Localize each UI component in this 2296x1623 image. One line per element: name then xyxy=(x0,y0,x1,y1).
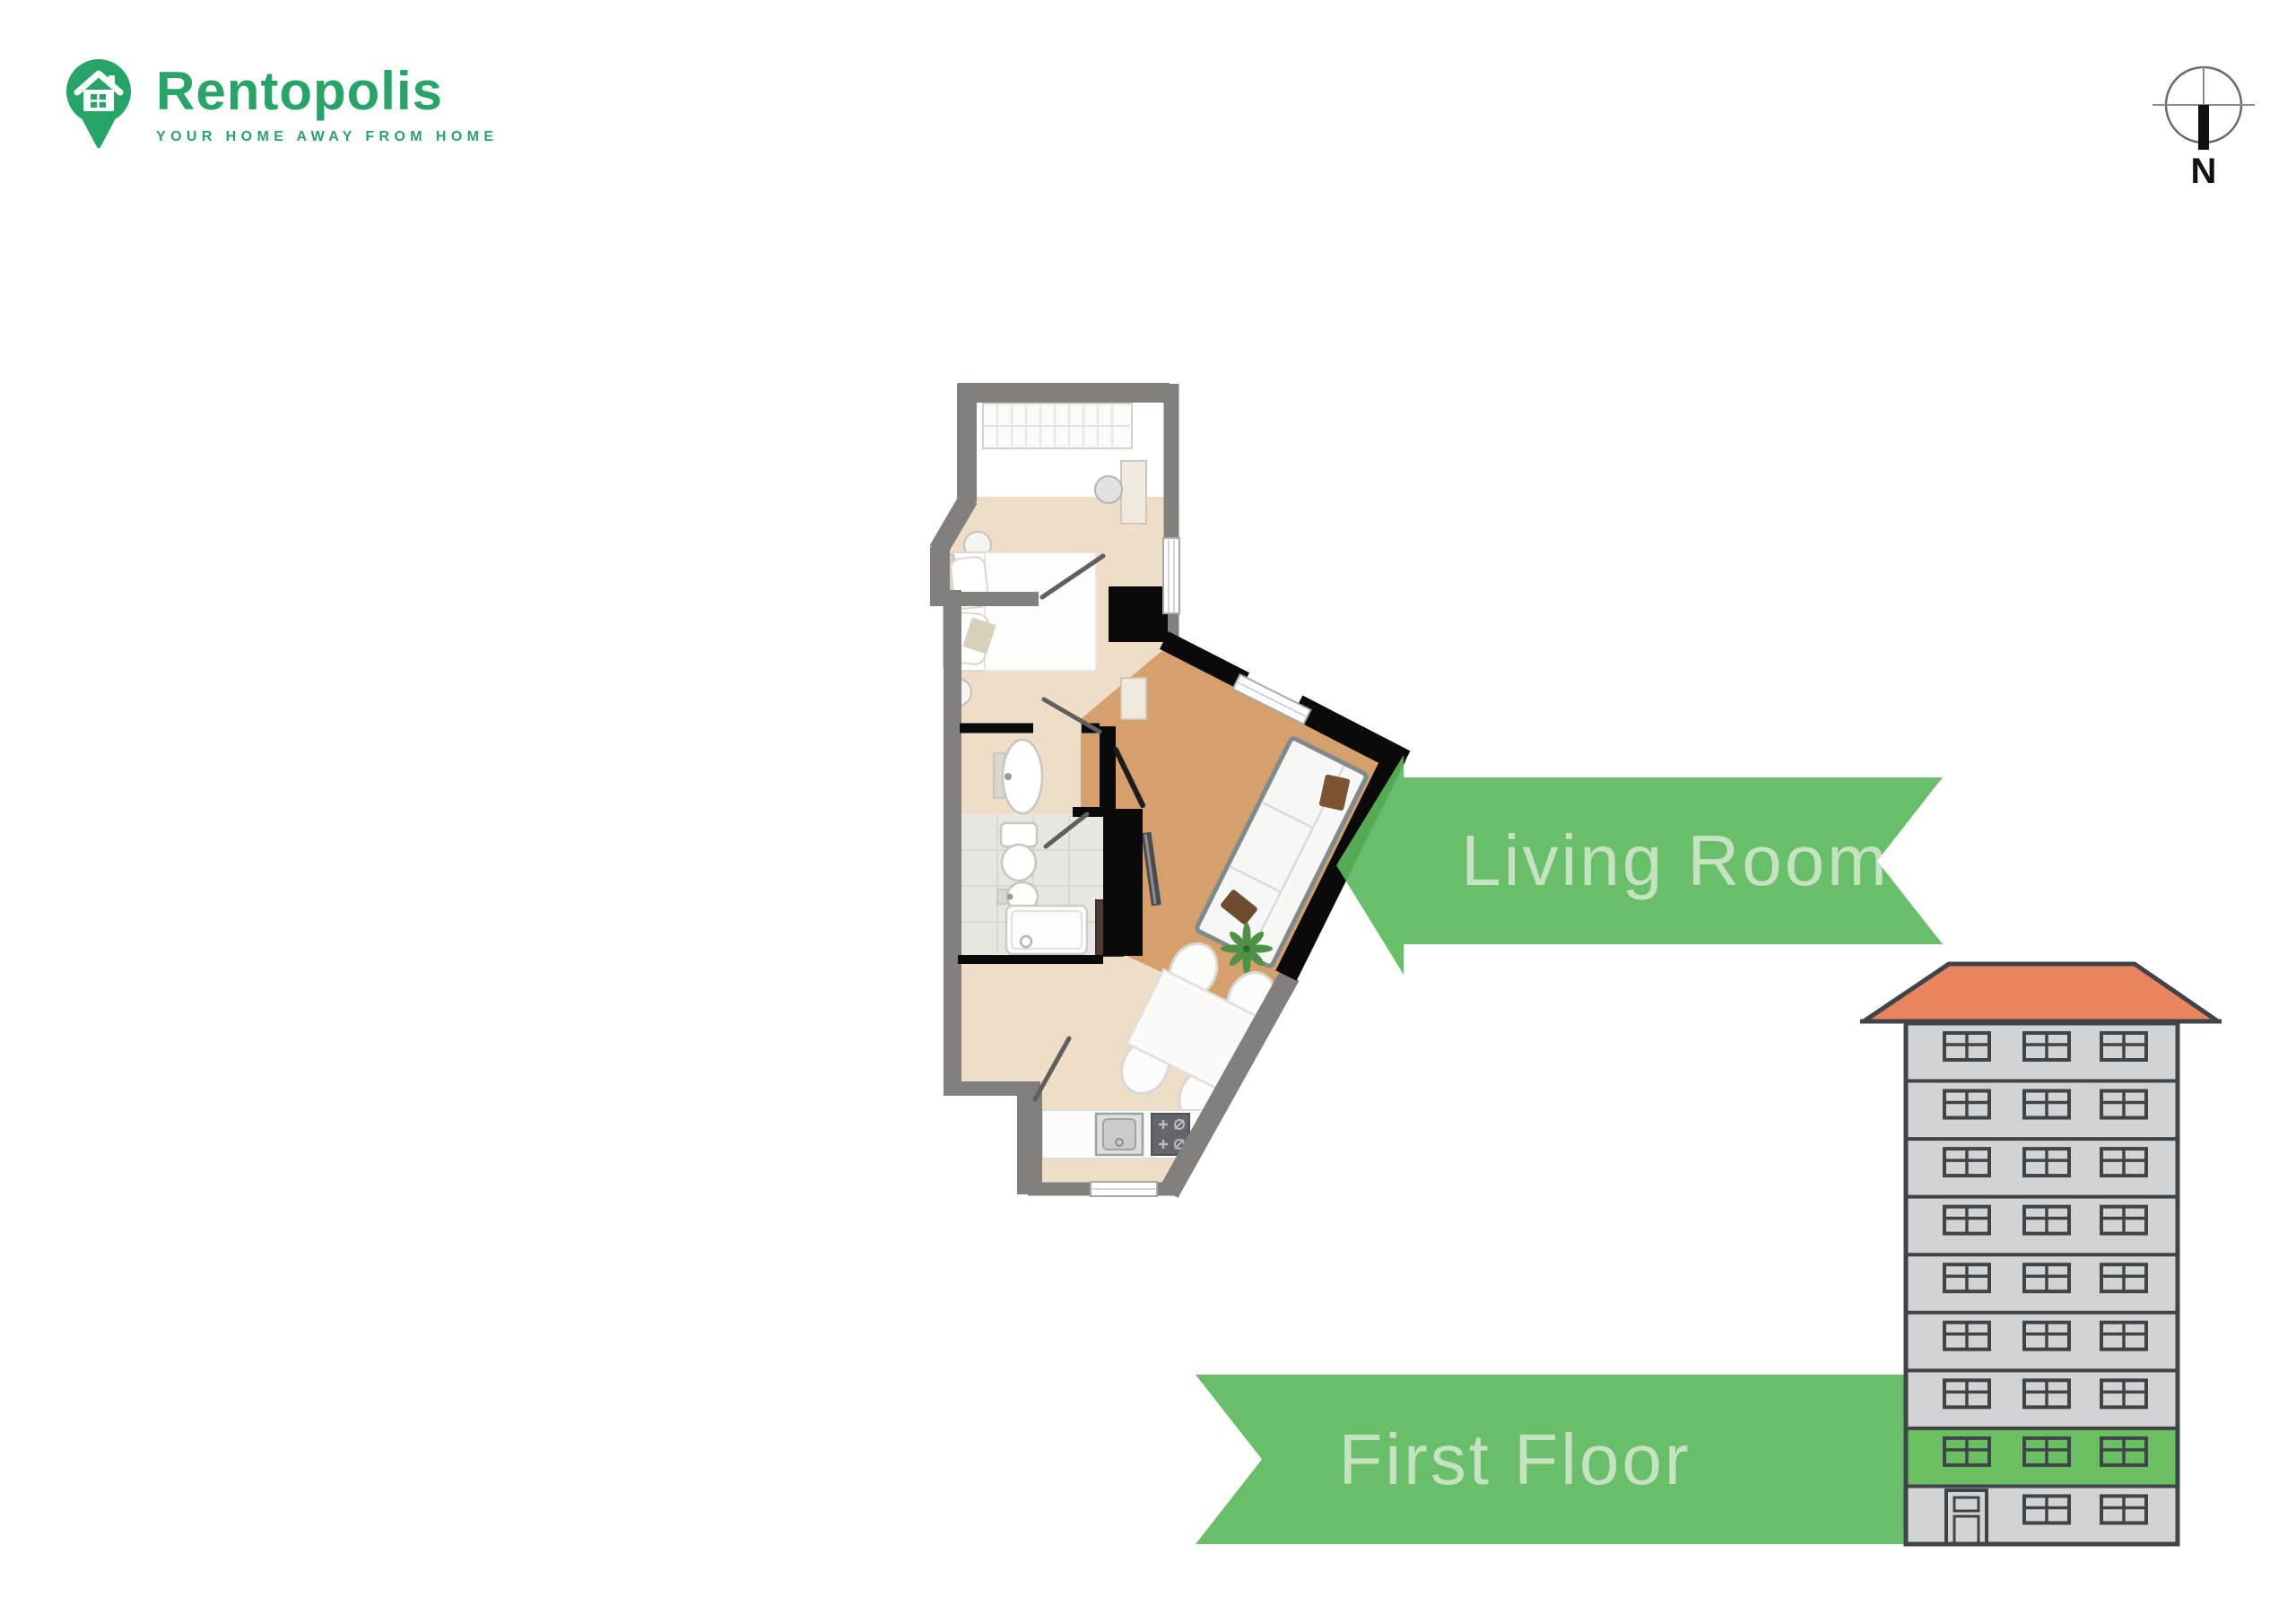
toilet-icon xyxy=(1001,823,1037,881)
building-roof-icon xyxy=(1860,964,2222,1021)
compass-north-icon: N xyxy=(2151,52,2267,195)
window-icon xyxy=(1091,1182,1157,1196)
brand-tagline: YOUR HOME AWAY FROM HOME xyxy=(156,129,498,145)
shower-tray-icon xyxy=(1006,906,1087,954)
floor-plan xyxy=(924,372,1415,1211)
compass-north-label: N xyxy=(2191,152,2217,191)
building-elevation xyxy=(1848,950,2233,1560)
hall-cabinet-icon xyxy=(1121,678,1146,719)
window-icon xyxy=(1163,538,1179,613)
double-bed-icon xyxy=(944,552,1096,671)
desk-icon xyxy=(1121,461,1146,524)
map-pin-house-icon xyxy=(54,52,143,161)
living-room-banner-label: Living Room xyxy=(1408,777,1943,944)
page: Rentopolis YOUR HOME AWAY FROM HOME N xyxy=(0,0,2296,1623)
rentopolis-logo: Rentopolis YOUR HOME AWAY FROM HOME xyxy=(54,52,498,161)
stool-icon xyxy=(1095,476,1122,503)
wardrobe-radiator-icon xyxy=(983,404,1132,448)
first-floor-banner-label: First Floor xyxy=(1196,1375,1906,1544)
living-room-banner: Living Room xyxy=(1336,755,1943,975)
kitchen-sink-icon xyxy=(1096,1114,1143,1155)
compass-needle xyxy=(2198,105,2209,150)
brand-name: Rentopolis xyxy=(156,65,498,118)
first-floor-banner: First Floor xyxy=(1196,1375,1906,1544)
